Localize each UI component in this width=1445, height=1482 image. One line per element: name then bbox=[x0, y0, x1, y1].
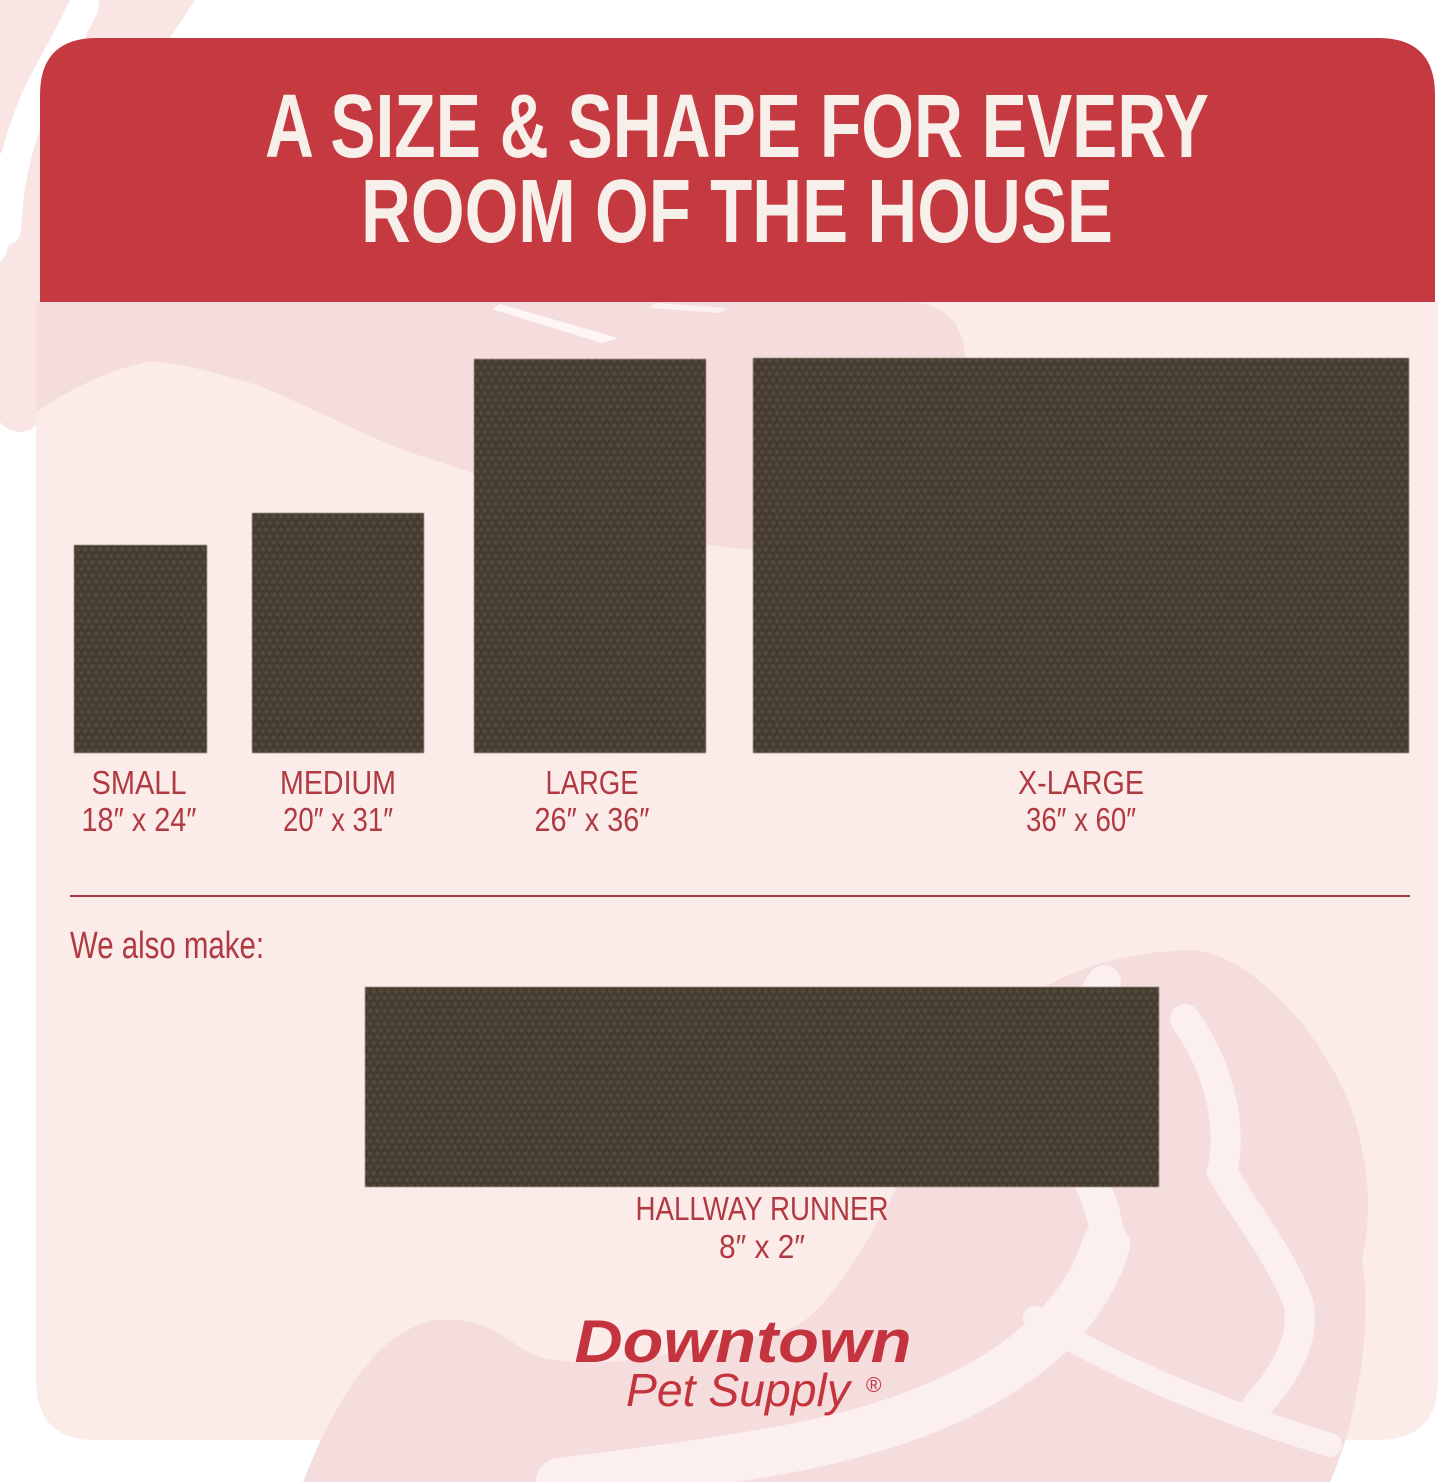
svg-text:SMALL: SMALL bbox=[92, 764, 187, 801]
svg-text:ROOM OF THE HOUSE: ROOM OF THE HOUSE bbox=[361, 162, 1113, 262]
svg-text:Pet Supply: Pet Supply bbox=[626, 1364, 853, 1416]
svg-text:26″ x 36″: 26″ x 36″ bbox=[535, 801, 650, 838]
svg-text:36″ x 60″: 36″ x 60″ bbox=[1026, 801, 1136, 838]
svg-text:We also make:: We also make: bbox=[70, 925, 264, 967]
svg-text:MEDIUM: MEDIUM bbox=[280, 764, 396, 801]
svg-text:LARGE: LARGE bbox=[546, 764, 639, 801]
svg-text:X-LARGE: X-LARGE bbox=[1018, 764, 1144, 801]
svg-text:®: ® bbox=[866, 1374, 882, 1397]
svg-text:20″ x 31″: 20″ x 31″ bbox=[283, 801, 393, 838]
svg-text:HALLWAY RUNNER: HALLWAY RUNNER bbox=[636, 1190, 889, 1227]
svg-text:18″ x 24″: 18″ x 24″ bbox=[82, 801, 197, 838]
svg-text:8″ x 2″: 8″ x 2″ bbox=[719, 1228, 805, 1265]
